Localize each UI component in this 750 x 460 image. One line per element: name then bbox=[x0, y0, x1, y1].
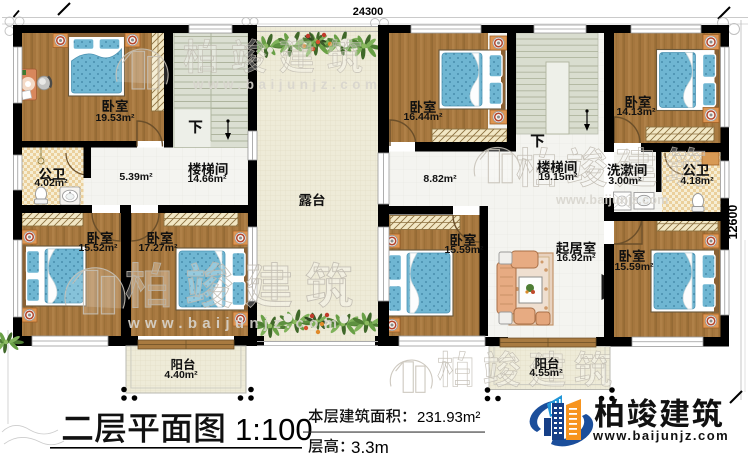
svg-text:www.baijunjz.com: www.baijunjz.com bbox=[592, 428, 729, 443]
svg-text:19.53m²: 19.53m² bbox=[95, 112, 135, 124]
svg-text:www.baijunjz.com: www.baijunjz.com bbox=[555, 193, 669, 207]
svg-text:1:100: 1:100 bbox=[235, 412, 313, 447]
svg-text:5.39m²: 5.39m² bbox=[119, 171, 153, 183]
svg-text:4.40m²: 4.40m² bbox=[164, 369, 198, 381]
svg-text:24300: 24300 bbox=[353, 6, 384, 18]
svg-text:17.27m²: 17.27m² bbox=[138, 242, 178, 254]
svg-text:16.92m²: 16.92m² bbox=[556, 252, 596, 264]
svg-text:14.13m²: 14.13m² bbox=[616, 106, 656, 118]
svg-text:4.55m²: 4.55m² bbox=[529, 367, 563, 379]
svg-text:8.82m²: 8.82m² bbox=[423, 173, 457, 185]
svg-text:www.baijunjz.com: www.baijunjz.com bbox=[192, 77, 382, 92]
svg-text:15.52m²: 15.52m² bbox=[78, 242, 118, 254]
svg-text:16.44m²: 16.44m² bbox=[403, 111, 443, 123]
svg-text:3.3m: 3.3m bbox=[351, 438, 389, 457]
svg-text:www.baijunjz.com: www.baijunjz.com bbox=[127, 315, 342, 332]
svg-text:4.02m²: 4.02m² bbox=[34, 177, 68, 189]
svg-text:231.93m²: 231.93m² bbox=[417, 409, 480, 426]
svg-text:4.18m²: 4.18m² bbox=[680, 175, 714, 187]
svg-text:19.15m²: 19.15m² bbox=[538, 171, 578, 183]
svg-text:3.00m²: 3.00m² bbox=[608, 175, 642, 187]
svg-text:15.59m²: 15.59m² bbox=[614, 261, 654, 273]
svg-text:14.66m²: 14.66m² bbox=[187, 173, 227, 185]
svg-text:15.59m²: 15.59m² bbox=[444, 244, 484, 256]
